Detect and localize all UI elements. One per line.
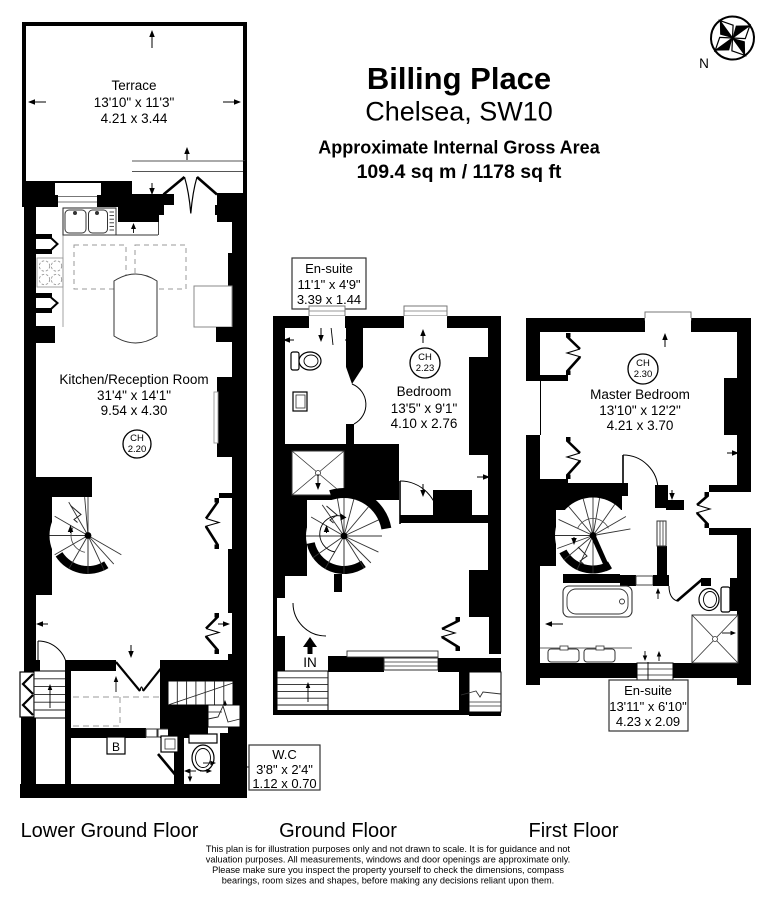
svg-text:13'10" x 12'2": 13'10" x 12'2" [599, 403, 681, 418]
svg-text:Approximate Internal Gross Are: Approximate Internal Gross Area [318, 138, 600, 158]
svg-text:9.54 x 4.30: 9.54 x 4.30 [101, 403, 168, 418]
svg-text:3'8" x 2'4": 3'8" x 2'4" [256, 762, 313, 777]
svg-text:4.10 x 2.76: 4.10 x 2.76 [391, 416, 458, 431]
svg-text:13'10" x 11'3": 13'10" x 11'3" [94, 95, 175, 110]
svg-text:CH: CH [636, 358, 650, 369]
svg-text:109.4 sq m / 1178 sq ft: 109.4 sq m / 1178 sq ft [357, 161, 562, 183]
svg-text:bearings, room sizes and shape: bearings, room sizes and shapes, before … [222, 876, 554, 886]
svg-text:4.21 x 3.70: 4.21 x 3.70 [607, 418, 674, 433]
svg-text:Ground Floor: Ground Floor [279, 820, 397, 842]
svg-text:Terrace: Terrace [111, 78, 156, 93]
svg-text:W.C: W.C [272, 747, 297, 762]
svg-text:2.30: 2.30 [634, 369, 653, 380]
svg-text:CH: CH [130, 433, 144, 444]
svg-text:4.23 x 2.09: 4.23 x 2.09 [616, 714, 680, 729]
svg-text:Chelsea, SW10: Chelsea, SW10 [365, 97, 553, 127]
svg-text:N: N [699, 56, 709, 71]
svg-text:B: B [112, 740, 120, 754]
svg-text:First Floor: First Floor [529, 820, 619, 842]
svg-text:1.12 x 0.70: 1.12 x 0.70 [252, 776, 316, 791]
svg-text:En-suite: En-suite [305, 261, 353, 276]
svg-text:4.21 x 3.44: 4.21 x 3.44 [101, 111, 168, 126]
svg-text:IN: IN [303, 655, 317, 670]
svg-text:13'11" x 6'10": 13'11" x 6'10" [609, 699, 687, 714]
svg-text:31'4" x 14'1": 31'4" x 14'1" [97, 388, 171, 403]
svg-text:Lower Ground Floor: Lower Ground Floor [21, 820, 199, 842]
svg-text:valuation purposes. All measur: valuation purposes. All measurements, wi… [206, 855, 570, 865]
svg-text:Please make sure you inspect t: Please make sure you inspect the propert… [212, 865, 564, 875]
svg-text:CH: CH [418, 352, 432, 363]
svg-text:2.20: 2.20 [128, 444, 147, 455]
svg-text:Master Bedroom: Master Bedroom [590, 387, 690, 402]
svg-text:2.23: 2.23 [416, 363, 435, 374]
svg-text:Billing Place: Billing Place [367, 61, 551, 96]
svg-text:This plan is for illustration: This plan is for illustration purposes o… [206, 844, 571, 854]
svg-text:3.39 x 1.44: 3.39 x 1.44 [297, 292, 361, 307]
svg-text:En-suite: En-suite [624, 683, 672, 698]
svg-text:13'5" x 9'1": 13'5" x 9'1" [391, 401, 458, 416]
svg-text:Bedroom: Bedroom [397, 384, 452, 399]
svg-text:Kitchen/Reception Room: Kitchen/Reception Room [59, 372, 208, 387]
svg-text:11'1" x 4'9": 11'1" x 4'9" [297, 277, 360, 292]
